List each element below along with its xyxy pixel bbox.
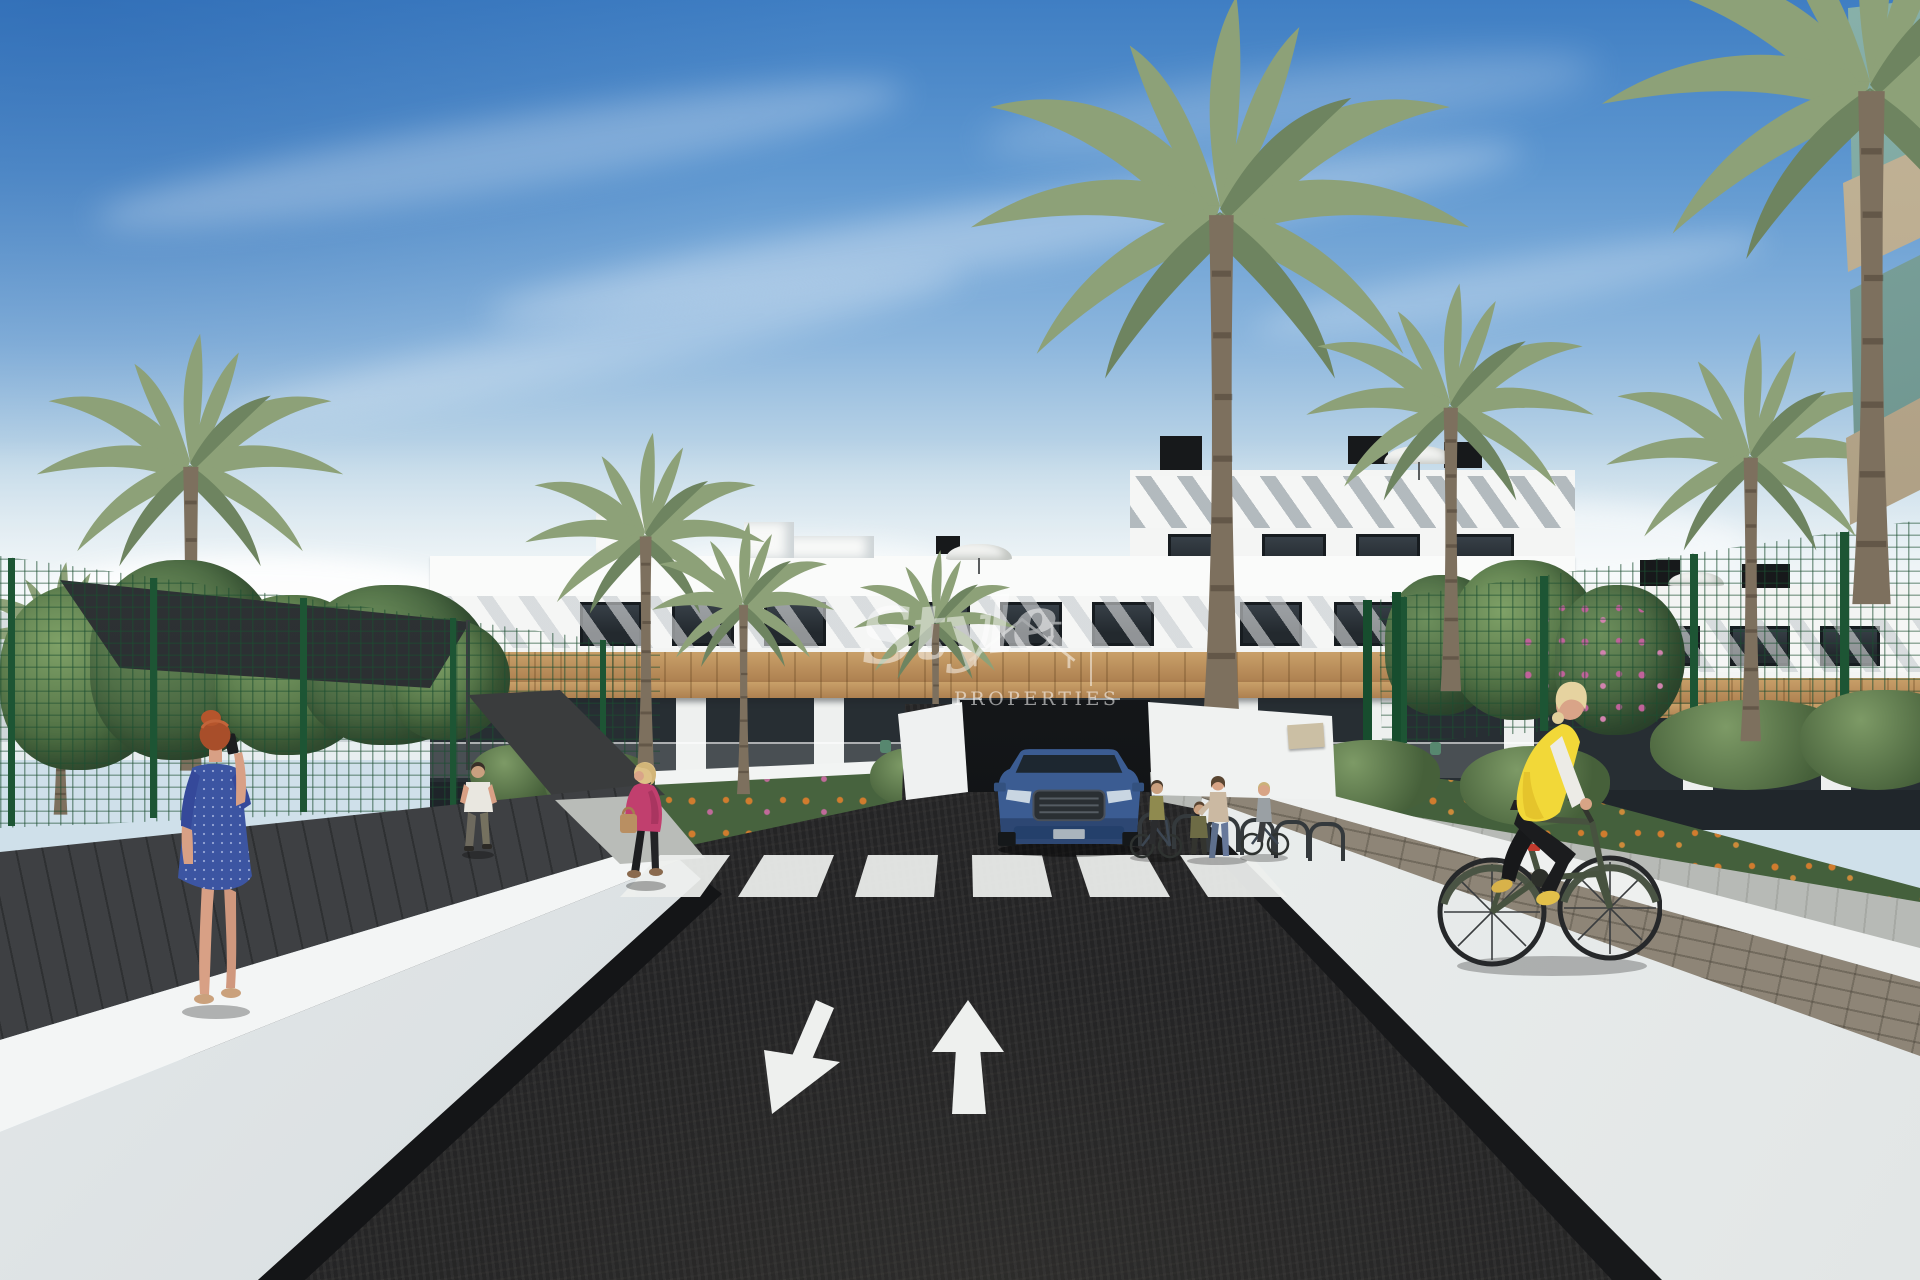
down-left-arrow-road-marking <box>764 1000 840 1114</box>
bike-rack <box>1308 822 1345 861</box>
residential-complex-render: Style PROPERTIES <box>0 0 1920 1280</box>
pedestrian-man <box>452 760 506 860</box>
watermark-divider <box>1090 650 1092 686</box>
pedestrian-woman-phone <box>148 706 288 1026</box>
watermark: Style PROPERTIES <box>858 592 1168 732</box>
watermark-script-text: Style <box>857 584 1059 677</box>
watermark-caps-text: PROPERTIES <box>954 688 1119 710</box>
pedestrian-group <box>1122 758 1302 868</box>
cyclist-woman-yellow-vest <box>1412 672 1662 982</box>
up-arrow-road-marking <box>932 1000 1004 1114</box>
pedestrian-woman-pink <box>612 752 684 892</box>
